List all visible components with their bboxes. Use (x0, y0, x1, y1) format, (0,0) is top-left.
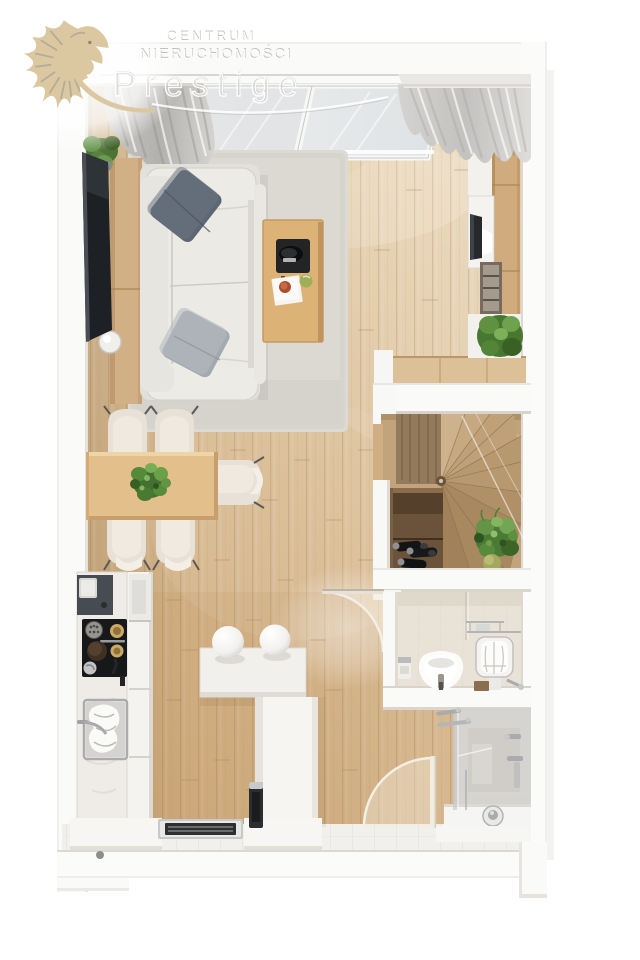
svg-text:NIERUCHOMOŚCI: NIERUCHOMOŚCI (140, 45, 293, 63)
svg-text:Prestige: Prestige (113, 66, 306, 104)
svg-text:CENTRUM: CENTRUM (166, 28, 256, 44)
